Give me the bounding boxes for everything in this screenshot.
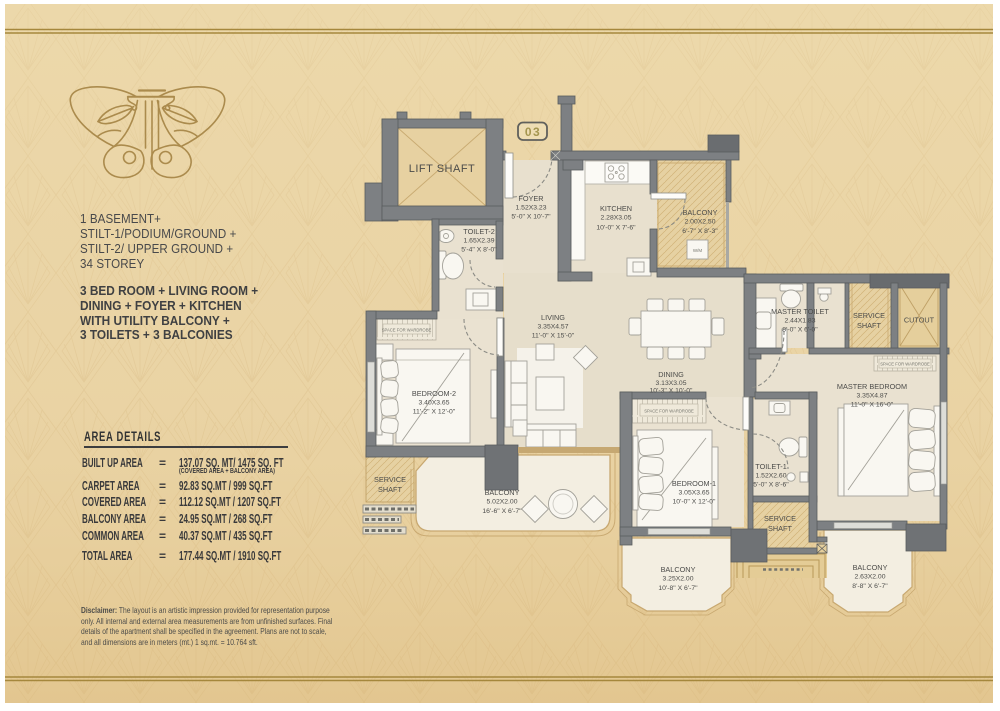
svg-text:10'-8" X 6'-7": 10'-8" X 6'-7" [658,585,698,592]
svg-text:SPACE FOR WARDROBE: SPACE FOR WARDROBE [382,328,432,333]
svg-text:SHAFT: SHAFT [857,321,881,330]
svg-text:SERVICE: SERVICE [374,475,406,484]
svg-text:5.02X2.00: 5.02X2.00 [487,499,518,506]
svg-text:FOYER: FOYER [518,194,543,203]
svg-text:3.40X3.65: 3.40X3.65 [419,400,450,407]
svg-text:CUTOUT: CUTOUT [904,316,935,325]
svg-text:3.05X3.65: 3.05X3.65 [679,490,710,497]
svg-text:8'-8" X 6'-7": 8'-8" X 6'-7" [852,583,888,590]
svg-text:BALCONY: BALCONY [485,488,520,497]
svg-text:SHAFT: SHAFT [768,524,792,533]
svg-text:3.13X3.05: 3.13X3.05 [656,380,687,387]
svg-text:DINING: DINING [658,370,684,379]
svg-text:SPACE FOR WARDROBE: SPACE FOR WARDROBE [880,362,930,367]
svg-text:5'-4" X 8'-0": 5'-4" X 8'-0" [461,247,497,254]
svg-text:6'-7" X 8'-3": 6'-7" X 8'-3" [682,228,718,235]
svg-text:3.35X4.87: 3.35X4.87 [857,393,888,400]
svg-text:8'-0" X 6'-0": 8'-0" X 6'-0" [782,327,818,334]
svg-text:1.65X2.39: 1.65X2.39 [464,238,495,245]
svg-text:11'-0" X 15'-0": 11'-0" X 15'-0" [532,333,575,340]
svg-text:11'-0" X 16'-0": 11'-0" X 16'-0" [851,402,894,409]
svg-text:2.28X3.05: 2.28X3.05 [601,215,632,222]
svg-text:3.25X2.00: 3.25X2.00 [663,576,694,583]
svg-text:BALCONY: BALCONY [683,208,718,217]
svg-text:SPACE FOR WARDROBE: SPACE FOR WARDROBE [644,409,694,414]
svg-text:MASTER BEDROOM: MASTER BEDROOM [837,382,907,391]
svg-text:2.00X2.50: 2.00X2.50 [685,219,716,226]
svg-text:W/M: W/M [693,248,702,253]
svg-text:SHAFT: SHAFT [378,485,402,494]
svg-text:1.52X2.60: 1.52X2.60 [756,473,787,480]
svg-text:03: 03 [525,125,541,139]
svg-text:10'-0" X 7'-6": 10'-0" X 7'-6" [596,225,636,232]
svg-text:BEDROOM-2: BEDROOM-2 [412,389,456,398]
svg-text:10'-0" X 12'-0": 10'-0" X 12'-0" [673,499,717,506]
svg-text:2.63X2.00: 2.63X2.00 [855,574,886,581]
svg-text:16'-6" X 6'-7": 16'-6" X 6'-7" [482,508,522,515]
svg-text:BALCONY: BALCONY [661,565,696,574]
svg-text:LIFT SHAFT: LIFT SHAFT [409,163,476,175]
svg-text:TOILET-2: TOILET-2 [463,227,495,236]
svg-text:3.35X4.57: 3.35X4.57 [538,324,569,331]
svg-text:MASTER TOILET: MASTER TOILET [771,307,829,316]
svg-text:2.44X1.83: 2.44X1.83 [785,318,816,325]
svg-text:1.52X3.23: 1.52X3.23 [516,205,547,212]
svg-text:BEDROOM-1: BEDROOM-1 [672,479,716,488]
svg-text:SERVICE: SERVICE [853,311,885,320]
svg-text:SERVICE: SERVICE [764,514,796,523]
svg-text:TOILET-1: TOILET-1 [755,462,787,471]
svg-text:5'-0" X 10'-7": 5'-0" X 10'-7" [511,214,551,221]
svg-text:5'-0" X 8'-6": 5'-0" X 8'-6" [753,482,789,489]
svg-text:KITCHEN: KITCHEN [600,204,632,213]
svg-text:10'-3" X 10'-0": 10'-3" X 10'-0" [650,388,694,395]
svg-text:BALCONY: BALCONY [853,563,888,572]
svg-text:11'-2" X 12'-0": 11'-2" X 12'-0" [413,409,456,416]
svg-text:LIVING: LIVING [541,313,565,322]
